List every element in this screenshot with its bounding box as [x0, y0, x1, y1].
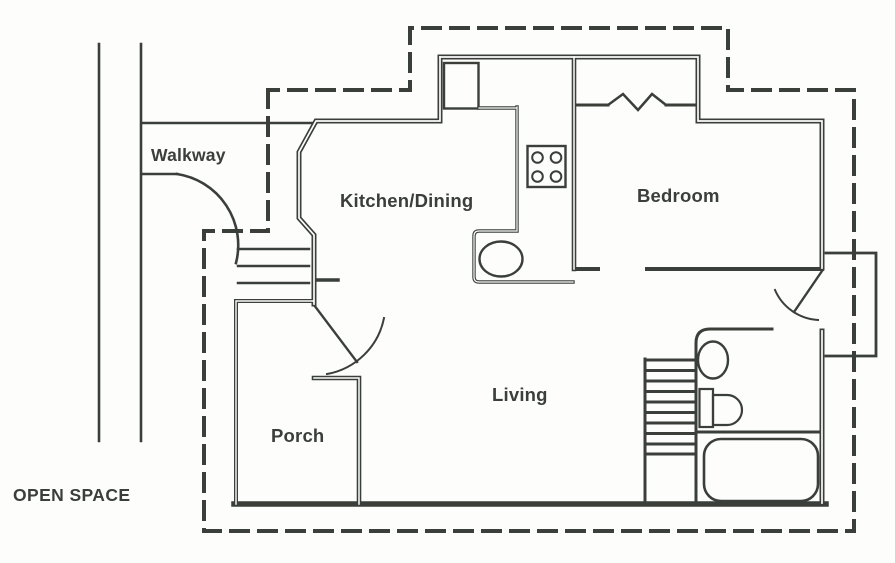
kitchen-sink	[480, 242, 523, 277]
label-walkway: Walkway	[151, 145, 226, 165]
label-porch: Porch	[271, 425, 324, 446]
bathtub	[704, 439, 818, 501]
kitchen-counter	[474, 107, 573, 282]
door-swing-arc	[327, 318, 384, 374]
pantry	[444, 63, 479, 109]
entry-steps	[238, 249, 309, 283]
burner-icon	[551, 171, 562, 182]
floor-plan-canvas: Walkway Kitchen/Dining Bedroom Living Po…	[0, 0, 895, 563]
burner-icon	[532, 171, 543, 182]
floor-plan: Walkway Kitchen/Dining Bedroom Living Po…	[0, 0, 895, 563]
label-living: Living	[492, 384, 548, 405]
walkway-path	[99, 44, 316, 441]
closet-accordion-door	[608, 94, 666, 110]
stove	[528, 146, 566, 187]
rear-door	[775, 271, 822, 320]
exterior-landing	[826, 253, 876, 356]
walkway-curve	[177, 174, 238, 263]
label-kitchen-dining: Kitchen/Dining	[340, 190, 473, 211]
bathroom-sink	[698, 342, 728, 379]
porch-posts	[231, 296, 364, 509]
bathroom-wall	[696, 329, 772, 503]
interior-stairs	[645, 359, 695, 502]
label-open-space: OPEN SPACE	[13, 485, 130, 505]
door-swing-arc	[775, 290, 818, 320]
entry-door	[314, 305, 384, 374]
labels: Walkway Kitchen/Dining Bedroom Living Po…	[13, 145, 720, 505]
burner-icon	[532, 152, 543, 163]
burner-icon	[551, 152, 562, 163]
label-bedroom: Bedroom	[637, 185, 720, 206]
property-boundary	[204, 28, 854, 531]
toilet	[700, 389, 743, 427]
